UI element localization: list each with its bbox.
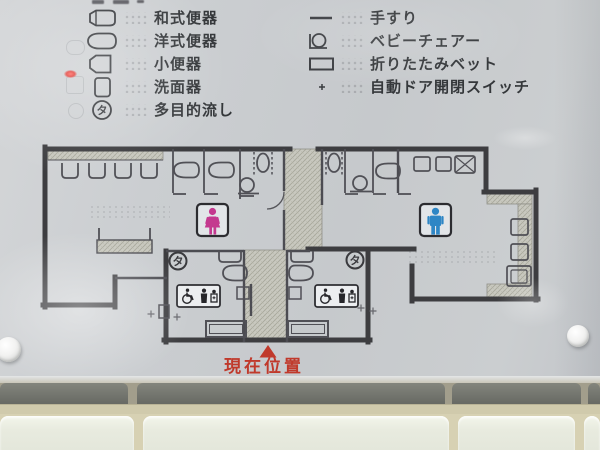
current-location-marker: 現在位置: [224, 345, 304, 376]
mens-room-pictogram: [420, 204, 451, 236]
womens-door-arc: [267, 192, 284, 209]
current-location-label: 現在位置: [224, 356, 304, 376]
wall-tile: [0, 416, 134, 450]
braille-dots: [88, 203, 170, 221]
braille-dots: [408, 250, 498, 264]
panel-bottom-edge: [0, 376, 600, 383]
accessible-signage-right: [315, 285, 358, 307]
wall-tile: [584, 416, 600, 450]
tile-row-shadow: [0, 383, 600, 404]
sign-panel: 和式便器 洋式便器 小便器 洗面器: [0, 0, 600, 378]
wall-tile: [458, 416, 575, 450]
svg-text:タ: タ: [350, 254, 361, 267]
wall-tile: [588, 383, 600, 404]
womens-room-pictogram: [197, 204, 228, 236]
womens-room-fixtures: [48, 149, 272, 253]
wall-tile: [143, 416, 449, 450]
svg-text:タ: タ: [173, 255, 184, 268]
mounting-cap-right: [567, 325, 589, 347]
wall-tile: [452, 383, 581, 404]
tile-row-bright: [0, 414, 600, 450]
wall-tile: [0, 383, 128, 404]
wall-tile: [137, 383, 445, 404]
accessible-signage-left: [177, 285, 220, 307]
restroom-map-sign-photo: 和式便器 洋式便器 小便器 洗面器: [0, 0, 600, 450]
